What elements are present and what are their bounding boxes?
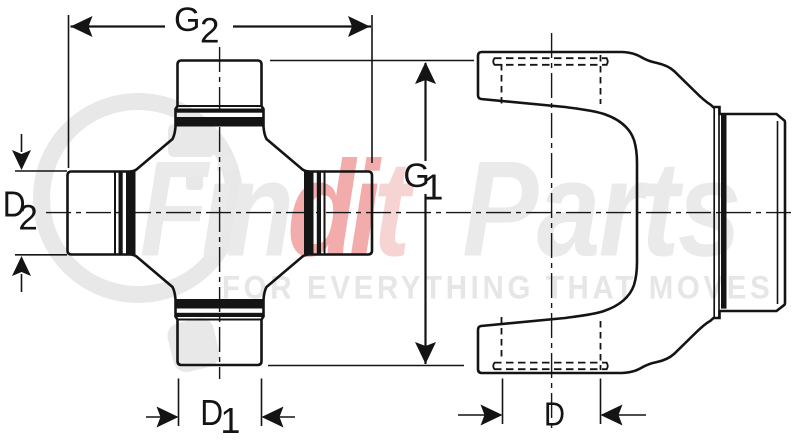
svg-text:Parts: Parts — [462, 132, 739, 285]
svg-text:2: 2 — [200, 12, 219, 51]
svg-text:G: G — [174, 1, 200, 39]
svg-text:D: D — [544, 396, 565, 433]
svg-text:Findit: Findit — [140, 133, 415, 285]
svg-text:1: 1 — [423, 167, 443, 208]
svg-text:FOR EVERYTHING THAT MOVES: FOR EVERYTHING THAT MOVES — [222, 269, 773, 305]
svg-text:1: 1 — [220, 400, 240, 441]
svg-text:2: 2 — [18, 199, 37, 238]
